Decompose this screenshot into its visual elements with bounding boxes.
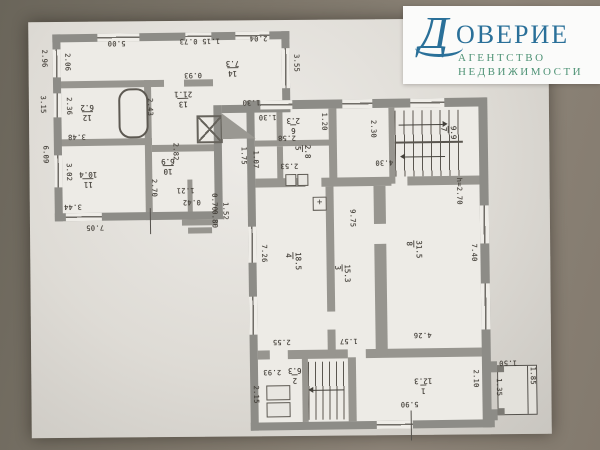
wall <box>152 144 221 152</box>
dim-label: 2.96 <box>40 50 48 68</box>
wall <box>407 175 480 185</box>
window <box>66 213 102 222</box>
dim-label: 2.10 <box>471 370 479 388</box>
wall <box>328 108 337 184</box>
sink-icon <box>285 174 296 186</box>
staircase-icon <box>394 110 463 177</box>
wall <box>60 80 164 88</box>
dim-label: 2.70 <box>149 179 157 197</box>
staircase-icon <box>308 361 349 420</box>
room-label: 79.9 <box>439 126 457 140</box>
dim-label: 1.85 <box>528 367 536 385</box>
room-number: 13 <box>178 98 189 108</box>
wall <box>184 79 213 86</box>
dim-label: 2.53 <box>280 161 298 169</box>
room-number: 1 <box>420 385 427 395</box>
dim-label: 3.15 <box>38 96 46 114</box>
stove-icon <box>266 402 290 417</box>
window <box>480 205 490 243</box>
room-area: 10.4 <box>79 170 97 179</box>
dim-label: 1.30 <box>258 112 276 120</box>
dim-label: 1.52 <box>221 202 229 220</box>
dim-label: 9.75 <box>348 209 356 227</box>
dim-label: 0.80 <box>210 210 218 228</box>
dim-label: 2.43 <box>145 98 153 116</box>
room-label: 126.2 <box>80 103 94 121</box>
window <box>377 420 413 429</box>
room-area: 2.8 <box>303 145 312 159</box>
dim-label: 2.82 <box>171 143 179 161</box>
arrowhead-icon <box>400 154 405 160</box>
wall <box>374 244 388 356</box>
room-number: 3 <box>333 264 343 271</box>
dim-label: 0.93 <box>184 70 202 78</box>
window <box>53 93 61 117</box>
window <box>282 48 291 88</box>
dim-label: 5.90 <box>400 399 418 407</box>
stove-icon <box>266 385 290 400</box>
dim-label: 2.15 <box>251 386 259 404</box>
window <box>410 98 444 107</box>
dim-label: 1.35 <box>494 378 502 396</box>
dim-label: 1.21 <box>176 185 194 193</box>
room-label: 315.3 <box>333 264 352 282</box>
wall <box>327 330 335 357</box>
window <box>481 283 491 329</box>
room-number: 8 <box>404 240 414 247</box>
dim-label: 2.93 <box>263 367 281 375</box>
wall <box>258 350 270 359</box>
room-area: 2.3 <box>286 116 300 125</box>
window <box>260 100 292 109</box>
room-area: 7.3 <box>226 59 240 68</box>
dim-label: 4.30 <box>375 158 393 166</box>
dim-label: 1.75 <box>239 147 247 165</box>
room-label: 831.5 <box>404 240 423 258</box>
room-area: 6.2 <box>80 103 94 112</box>
room-area: 9.9 <box>448 126 457 140</box>
porch-post <box>498 408 505 415</box>
dim-label: 1.50 <box>499 358 517 366</box>
room-area: 15.3 <box>342 264 351 282</box>
room-area: 12.3 <box>414 376 432 385</box>
room-number: 7 <box>439 126 449 133</box>
logo-tagline-1: АГЕНТСТВО <box>458 52 546 64</box>
dim-label: 1.15 0.73 <box>179 36 220 44</box>
photo-scene: + 1321.1126.2147.31110.4106.962.352.879.… <box>0 0 600 450</box>
dim-label: 4.26 <box>413 330 431 338</box>
room-label: 1321.1 <box>174 89 192 108</box>
dim-label: 7.40 <box>469 244 477 262</box>
room-label: 52.8 <box>293 145 311 159</box>
room-number: 12 <box>82 112 93 122</box>
sink-icon <box>297 174 308 186</box>
cross-symbol: + <box>313 197 327 211</box>
room-area: 31.5 <box>414 240 423 258</box>
window <box>342 99 372 108</box>
room-label: 112.3 <box>414 376 432 395</box>
room-label: 418.5 <box>283 252 302 270</box>
room-number: 5 <box>293 145 303 152</box>
stair-direction-arrow <box>405 156 445 158</box>
dim-label: 2.36 <box>64 97 72 115</box>
room-area: 21.1 <box>174 89 192 98</box>
room-label: 147.3 <box>226 59 240 77</box>
window <box>249 297 258 335</box>
dim-label: 5.00 <box>107 38 125 46</box>
dim-label: 2.30 <box>369 120 377 138</box>
wall <box>373 186 386 224</box>
dim-label: 2.58 <box>278 133 296 141</box>
wall <box>321 177 391 187</box>
room-number: 11 <box>83 178 94 188</box>
agency-logo: Д ОВЕРИЕ АГЕНТСТВО НЕДВИЖИМОСТИ <box>403 6 600 84</box>
dim-label: 7.05 <box>86 223 104 231</box>
dim-label: 2.55 <box>273 337 291 345</box>
dim-label: 2.04 <box>249 33 267 41</box>
dim-label: 7.26 <box>259 244 267 262</box>
room-label: 62.3 <box>286 116 300 134</box>
dim-label: 1.20 <box>319 113 327 131</box>
logo-brand-text: ОВЕРИЕ <box>456 20 569 50</box>
dim-label: 1.57 <box>340 336 358 344</box>
room-number: 2 <box>292 375 299 385</box>
dim-label: 3.44 <box>64 202 82 210</box>
dim-label: h=2.70 <box>454 178 462 205</box>
room-number: 14 <box>227 67 238 77</box>
stair-direction-arrow <box>399 124 443 126</box>
arrowhead-icon <box>308 387 313 393</box>
dim-label: 1.30 <box>242 98 260 106</box>
wall <box>188 227 212 233</box>
logo-tagline-2: НЕДВИЖИМОСТИ <box>458 66 583 78</box>
dim-label: 6.09 <box>41 146 49 164</box>
stair-landing-line <box>395 141 463 144</box>
room-number: 10 <box>162 165 173 175</box>
dim-label: 0.70 <box>210 193 218 211</box>
window <box>248 227 257 263</box>
wall <box>325 187 335 312</box>
dim-label: 2.06 <box>63 53 71 71</box>
room-area: 18.5 <box>293 252 302 270</box>
room-area: 6.3 <box>288 366 302 375</box>
room-label: 1110.4 <box>79 170 97 189</box>
window <box>54 155 62 187</box>
dim-label: 3.02 <box>64 163 72 181</box>
wall <box>348 357 357 421</box>
wall <box>288 349 348 359</box>
window <box>53 49 61 77</box>
room-number: 4 <box>283 252 293 259</box>
stair-direction-arrow <box>312 389 344 390</box>
dim-label: 0.42 <box>183 197 201 205</box>
dim-label: 3.55 <box>292 54 300 72</box>
dim-label: 1.07 <box>251 151 259 169</box>
room-label: 26.3 <box>288 366 302 384</box>
ventilation-shaft-icon <box>196 115 222 143</box>
bathtub-icon <box>118 88 149 138</box>
dim-label: 3.48 <box>68 132 86 140</box>
